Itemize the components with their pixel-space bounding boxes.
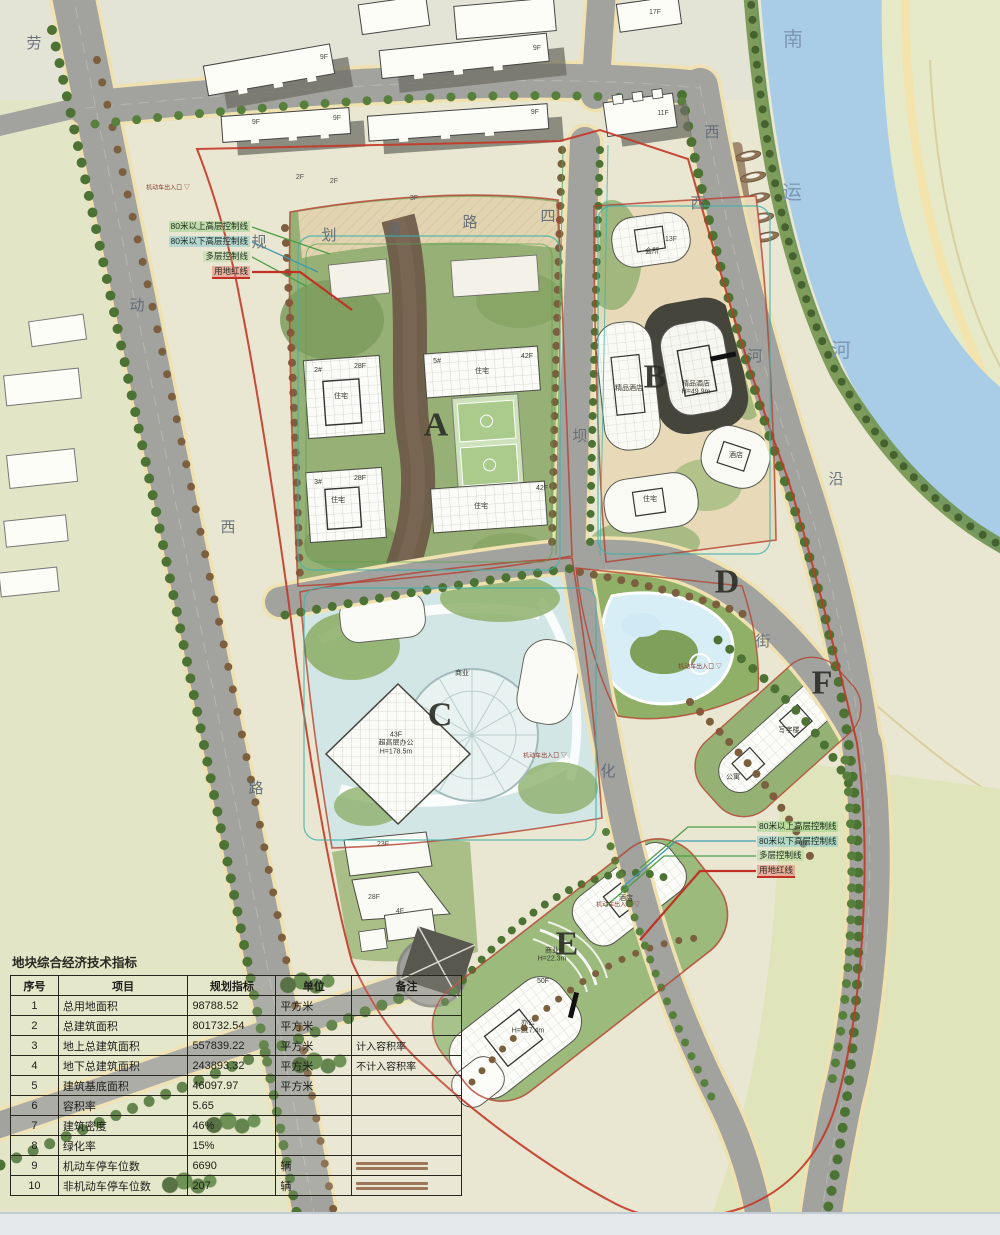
table-cell: 辆 [276,1176,352,1196]
table-row: 6容积率5.65 [11,1096,462,1116]
fine-print [356,1160,428,1172]
table-cell: 总用地面积 [58,996,188,1016]
table-cell [352,1096,462,1116]
table-row: 9机动车停车位数6690辆 [11,1156,462,1176]
table-cell: 绿化率 [58,1136,188,1156]
table-cell: 平方米 [276,1076,352,1096]
col-单位: 单位 [276,976,352,996]
table-cell: 9 [11,1156,59,1176]
table-cell [276,1116,352,1136]
table-cell: 557839.22 [188,1036,276,1056]
table-header-row: 序号 项目 规划指标 单位 备注 [11,976,462,996]
table-row: 10非机动车停车位数207辆 [11,1176,462,1196]
table-cell: 平方米 [276,1056,352,1076]
table-row: 4地下总建筑面积243893.32平方米不计入容积率 [11,1056,462,1076]
col-备注: 备注 [352,976,462,996]
table-title: 地块综合经济技术指标 [12,952,462,971]
table-cell: 243893.32 [188,1056,276,1076]
table-cell [352,1176,462,1196]
table-cell [276,1136,352,1156]
building-3 [306,467,387,542]
table-cell [276,1096,352,1116]
table-cell: 5.65 [188,1096,276,1116]
table-cell: 801732.54 [188,1016,276,1036]
col-规划指标: 规划指标 [188,976,276,996]
table-cell: 46097.97 [188,1076,276,1096]
table-cell: 4 [11,1056,59,1076]
table-cell: 非机动车停车位数 [58,1176,188,1196]
table-cell: 平方米 [276,1016,352,1036]
table-row: 2总建筑面积801732.54平方米 [11,1016,462,1036]
table-cell: 207 [188,1176,276,1196]
table-cell [352,996,462,1016]
table-cell: 8 [11,1136,59,1156]
table-cell [352,1116,462,1136]
table-cell: 平方米 [276,1036,352,1056]
building-5 [424,346,541,398]
building-42f [431,481,548,533]
table-cell: 地上总建筑面积 [58,1036,188,1056]
table-cell: 10 [11,1176,59,1196]
fine-print [356,1180,428,1192]
block-A [280,195,572,586]
table-row: 5建筑基底面积46097.97平方米 [11,1076,462,1096]
bottom-strip [0,1213,1000,1235]
table-cell: 建筑密度 [58,1116,188,1136]
col-项目: 项目 [58,976,188,996]
table-cell: 机动车停车位数 [58,1156,188,1176]
table-row: 1总用地面积98788.52平方米 [11,996,462,1016]
table-cell [352,1016,462,1036]
table-cell: 建筑基底面积 [58,1076,188,1096]
table-cell [352,1156,462,1176]
table-cell: 2 [11,1016,59,1036]
table-cell: 不计入容积率 [352,1056,462,1076]
table-cell: 1 [11,996,59,1016]
table-cell: 平方米 [276,996,352,1016]
table-cell: 46% [188,1116,276,1136]
table-cell: 6 [11,1096,59,1116]
table-cell: 地下总建筑面积 [58,1056,188,1076]
table-cell: 总建筑面积 [58,1016,188,1036]
table-cell: 辆 [276,1156,352,1176]
table-cell [352,1076,462,1096]
table-row: 3地上总建筑面积557839.22平方米计入容积率 [11,1036,462,1056]
table-row: 8绿化率15% [11,1136,462,1156]
table-cell: 7 [11,1116,59,1136]
col-序号: 序号 [11,976,59,996]
table-cell: 容积率 [58,1096,188,1116]
table-cell: 6690 [188,1156,276,1176]
table-cell: 98788.52 [188,996,276,1016]
building-2 [303,355,384,438]
table-cell: 3 [11,1036,59,1056]
economic-indicators-table: 地块综合经济技术指标 序号 项目 规划指标 单位 备注 1总用地面积98788.… [10,952,462,1196]
table-cell: 计入容积率 [352,1036,462,1056]
table-cell [352,1136,462,1156]
table-cell: 15% [188,1136,276,1156]
table-row: 7建筑密度46% [11,1116,462,1136]
table-cell: 5 [11,1076,59,1096]
site-plan-page: ABCDEF南运河劳动西路西西河沿街规划道路四坝化9F9F9F9F9F11F17… [0,0,1000,1235]
